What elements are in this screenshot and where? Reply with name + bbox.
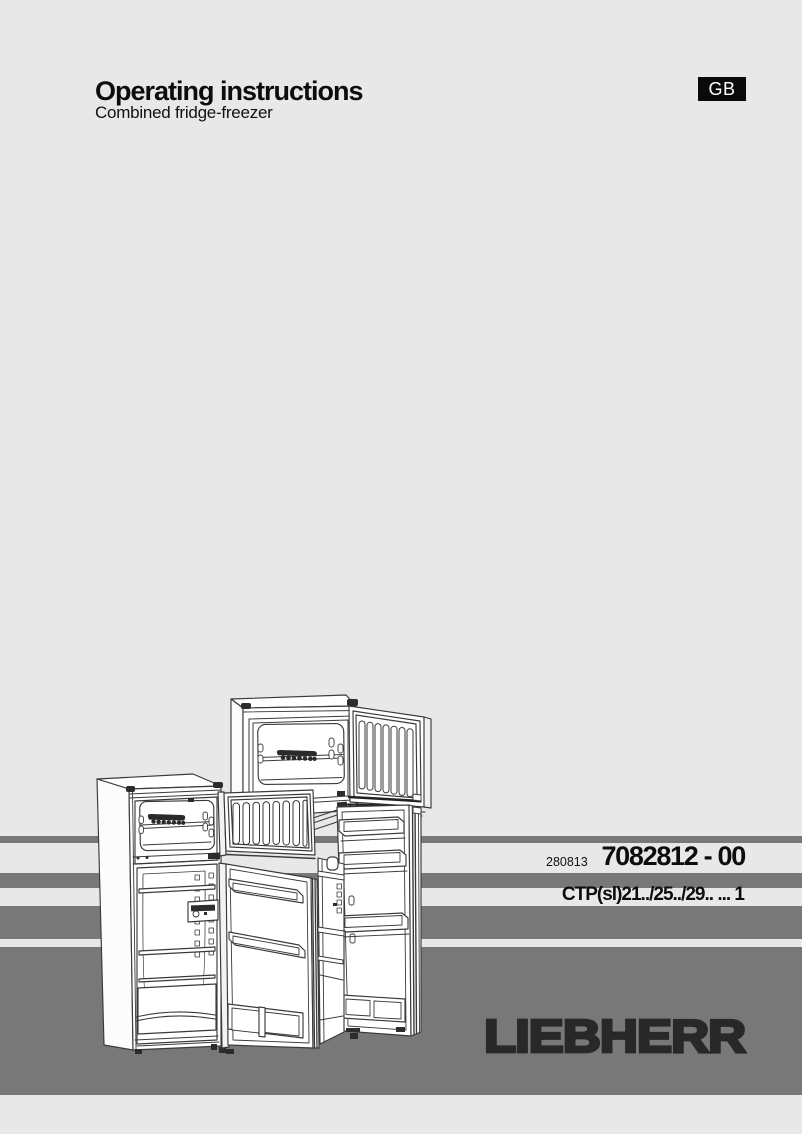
svg-text:LIEBHERR: LIEBHERR	[484, 1012, 746, 1058]
